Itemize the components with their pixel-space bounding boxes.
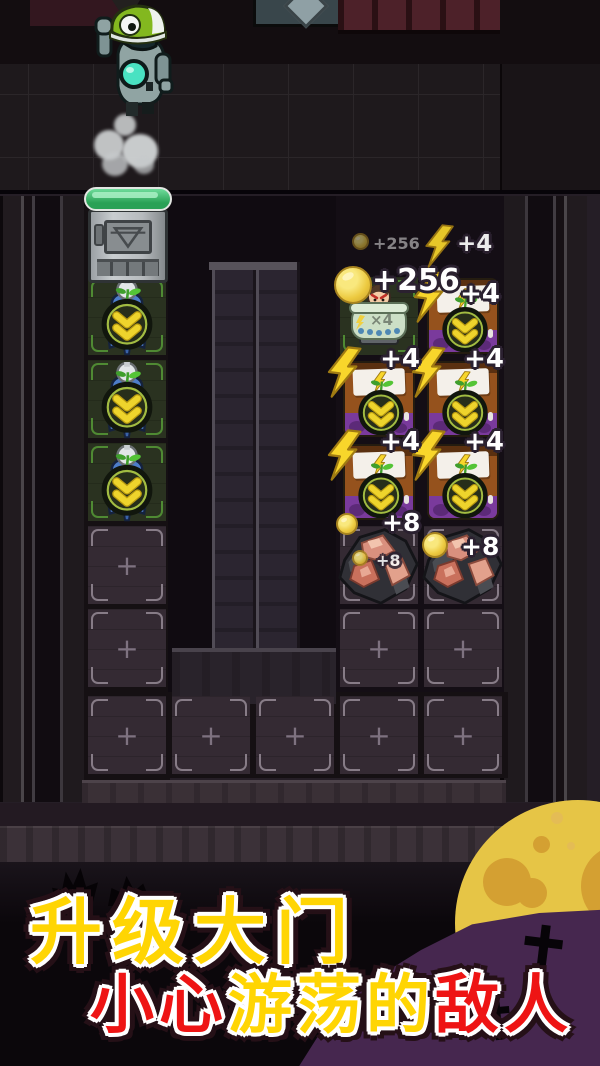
pot-multiplier-label: ×4 [370, 311, 393, 329]
hero-character [90, 2, 190, 122]
game-screen: + + + + + + + + + [0, 0, 600, 1066]
meat-tile[interactable]: +8 [424, 526, 502, 604]
plus-icon: + [340, 609, 418, 687]
coin-icon [334, 266, 372, 304]
card-gain-label: +4 [464, 429, 504, 455]
empty-board-tile[interactable]: + [424, 609, 502, 687]
empty-board-tile[interactable]: + [256, 696, 334, 774]
wall-strip [3, 196, 21, 802]
meat-tile[interactable]: +8 +8 [340, 526, 418, 604]
empty-board-tile[interactable]: + [340, 609, 418, 687]
coin-icon [352, 233, 369, 250]
card-pill [488, 495, 493, 504]
rank-insignia-icon [440, 462, 490, 520]
banner-text-segment: 升级大门 [30, 890, 358, 974]
plus-icon: + [256, 696, 334, 774]
wall-pillar [212, 262, 256, 658]
gate-hp-bar [84, 187, 172, 211]
meat-coin-gain-label: +8 [461, 534, 499, 559]
card-pill [488, 412, 493, 421]
wall-strip [35, 196, 60, 802]
card-gain-label: +4 [380, 346, 420, 372]
banner-text-segment: 敌人 [435, 969, 573, 1043]
empty-board-tile[interactable]: + [424, 696, 502, 774]
smoke-puff [134, 156, 154, 174]
rank-chevrons-icon [99, 287, 155, 351]
lightning-icon [326, 346, 362, 398]
lightning-icon [326, 429, 362, 481]
banner-line-1: 升级大门 [30, 896, 358, 968]
floating-coin-text: +256 [373, 234, 420, 253]
plus-icon: + [424, 696, 502, 774]
plus-icon: + [340, 696, 418, 774]
pillar-cap [253, 262, 297, 270]
wall-strip [63, 196, 84, 802]
banner-text-segment: 游荡的 [228, 969, 435, 1043]
card-pill [488, 329, 493, 338]
empty-board-tile[interactable]: + [88, 526, 166, 604]
empty-board-tile[interactable]: + [88, 696, 166, 774]
plus-icon: + [172, 696, 250, 774]
rank-chevrons-icon [99, 453, 155, 517]
moon-crater [567, 842, 575, 850]
rank-chevrons-icon [99, 370, 155, 434]
pillar-cap [209, 262, 253, 270]
floating-bolt-text: +4 [457, 233, 492, 256]
empty-board-tile[interactable]: + [88, 609, 166, 687]
floor-right-panel [500, 64, 600, 190]
meat-inner-gain-label: +8 [376, 553, 401, 569]
upgrade-card-tile[interactable]: +4 [424, 443, 502, 521]
banner-line-2: 小心游荡的敌人 [90, 974, 573, 1038]
wall-strip [24, 196, 32, 802]
wall-strip [556, 196, 564, 802]
empty-board-tile[interactable]: + [340, 696, 418, 774]
gate-triangle-icon [108, 224, 148, 250]
coin-icon [352, 550, 368, 566]
card-gain-label: +4 [464, 346, 504, 372]
plus-icon: + [88, 609, 166, 687]
card-gain-label: +4 [460, 281, 500, 307]
top-conveyor [338, 0, 500, 34]
moon-crater [533, 836, 550, 853]
machine-diamond-icon [283, 0, 328, 29]
card-gain-label: +4 [380, 429, 420, 455]
plus-icon: + [88, 526, 166, 604]
wall-strip [528, 196, 553, 802]
gate-handle [94, 224, 104, 246]
coin-icon [336, 513, 358, 535]
wall-pillar [256, 262, 300, 658]
defender-unit-tile[interactable] [88, 360, 166, 438]
coin-icon [422, 532, 448, 558]
empty-board-tile[interactable]: + [172, 696, 250, 774]
machine-box [253, 0, 343, 27]
lightning-icon [424, 224, 454, 268]
plus-icon: + [424, 609, 502, 687]
meat-coin-gain-label: +8 [382, 510, 420, 535]
gate-panel [104, 220, 152, 254]
banner-text-segment: 小心 [90, 969, 228, 1043]
wall-strip [587, 196, 600, 802]
moon-crater [551, 812, 563, 824]
smoke-puff [102, 152, 128, 176]
card-pill [404, 495, 409, 504]
defender-unit-tile[interactable] [88, 277, 166, 355]
gate-grill [97, 259, 159, 276]
wall-strip [567, 196, 587, 802]
pot-coin-gain-label: +256 [372, 266, 460, 296]
defender-unit-tile[interactable] [88, 443, 166, 521]
gate[interactable] [88, 209, 168, 283]
card-pill [404, 412, 409, 421]
moon-crater [517, 878, 547, 908]
plus-icon: + [88, 696, 166, 774]
